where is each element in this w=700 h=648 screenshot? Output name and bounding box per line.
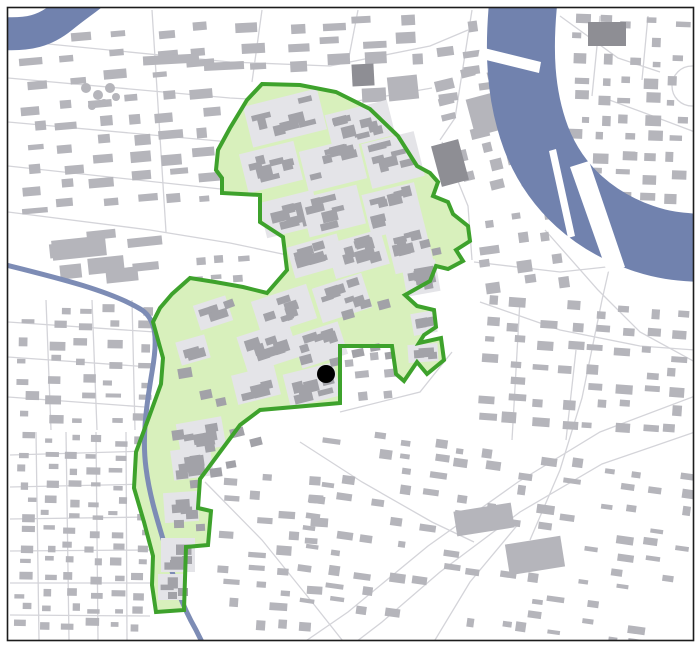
building [91, 435, 101, 442]
large-building [362, 87, 387, 102]
building [630, 57, 641, 65]
building [250, 491, 260, 500]
building [70, 500, 79, 508]
building [57, 144, 72, 154]
building [623, 328, 635, 337]
building [214, 255, 224, 263]
building [23, 603, 32, 609]
building [115, 441, 127, 447]
building [196, 127, 207, 138]
building [111, 622, 119, 627]
building [47, 481, 59, 488]
building [211, 274, 222, 279]
building [83, 374, 96, 383]
building [435, 439, 448, 449]
building [626, 504, 637, 512]
building [307, 586, 323, 595]
building [86, 467, 100, 475]
building [670, 135, 683, 141]
building [568, 341, 585, 350]
building [17, 464, 25, 471]
building [516, 259, 533, 273]
building [176, 469, 189, 479]
building [76, 359, 85, 366]
building [323, 23, 346, 32]
storage-tank [105, 83, 115, 93]
building [532, 364, 548, 371]
building [257, 517, 273, 524]
large-building [387, 74, 419, 101]
building [667, 100, 674, 106]
building [22, 526, 35, 532]
building [174, 520, 184, 528]
building [645, 385, 660, 392]
building [45, 556, 54, 561]
building [163, 90, 176, 100]
building [400, 485, 412, 496]
building [250, 63, 266, 70]
building [299, 622, 311, 632]
building [73, 338, 87, 346]
building [642, 175, 656, 185]
building [217, 565, 228, 573]
building [111, 590, 125, 596]
building [466, 618, 474, 628]
building [647, 17, 657, 23]
building [678, 117, 688, 124]
building [69, 513, 80, 518]
building [644, 78, 659, 89]
building [602, 116, 611, 126]
building [133, 593, 144, 600]
building [540, 232, 550, 242]
building [106, 393, 121, 397]
building [41, 510, 49, 515]
building [21, 546, 33, 554]
building [518, 232, 529, 244]
building [124, 94, 137, 102]
building [50, 342, 66, 351]
building [67, 588, 77, 596]
building [19, 453, 29, 458]
building [552, 253, 563, 264]
building [73, 603, 80, 611]
building [48, 546, 56, 553]
building [22, 514, 35, 522]
building [63, 572, 72, 580]
building [35, 120, 47, 130]
storage-tank [93, 90, 103, 100]
building [113, 486, 122, 491]
building [28, 498, 37, 502]
building [572, 457, 584, 468]
building [604, 54, 613, 65]
building [132, 170, 152, 181]
building [175, 499, 190, 512]
building [241, 43, 265, 54]
building [196, 524, 205, 531]
building [17, 359, 25, 364]
building [209, 467, 222, 478]
building [281, 590, 291, 596]
building [79, 323, 92, 330]
building [328, 565, 340, 576]
building [45, 495, 57, 503]
building [233, 275, 243, 283]
building [355, 370, 369, 378]
building [672, 170, 687, 180]
building [625, 133, 635, 140]
building [401, 14, 415, 25]
building [614, 347, 631, 356]
building [54, 321, 66, 328]
building [91, 593, 103, 599]
building [596, 325, 610, 333]
building [402, 468, 411, 475]
building [482, 353, 499, 363]
building [558, 365, 572, 374]
building [527, 572, 538, 583]
building [390, 517, 403, 527]
map-figure [0, 0, 700, 648]
building [479, 82, 491, 91]
building [616, 169, 630, 175]
building [256, 581, 266, 588]
building [131, 573, 143, 580]
building [540, 320, 558, 329]
building [109, 49, 124, 57]
building [238, 255, 250, 261]
building [132, 606, 143, 613]
building [644, 153, 656, 161]
building [27, 80, 47, 90]
building [582, 117, 589, 123]
building [61, 624, 74, 630]
building [672, 330, 687, 340]
building [88, 502, 99, 507]
large-building [588, 22, 626, 46]
building [161, 585, 174, 591]
building [487, 317, 500, 327]
building [363, 41, 387, 49]
building [93, 515, 104, 520]
building [678, 310, 689, 317]
building [71, 32, 92, 42]
building [115, 576, 125, 582]
building [342, 475, 356, 485]
building [49, 464, 59, 469]
building [103, 68, 127, 79]
building [43, 589, 51, 597]
building [112, 532, 124, 538]
building [22, 432, 35, 438]
building [170, 560, 179, 567]
building [14, 620, 26, 627]
building [575, 78, 590, 85]
building [515, 621, 526, 632]
building [134, 134, 151, 146]
building [310, 517, 328, 527]
building [653, 62, 661, 68]
building [457, 495, 468, 504]
building [108, 511, 117, 515]
building [412, 53, 423, 64]
building [45, 438, 52, 443]
building [370, 352, 379, 360]
building [468, 20, 479, 32]
building [262, 474, 272, 481]
building [45, 395, 61, 404]
building [63, 528, 75, 534]
building [109, 468, 123, 473]
building [645, 115, 661, 126]
building [192, 21, 206, 30]
building [42, 605, 51, 611]
building [100, 115, 113, 126]
building [278, 511, 295, 519]
location-marker-dot [317, 365, 335, 383]
building [511, 212, 520, 219]
building [116, 456, 127, 461]
building [161, 154, 182, 167]
building [113, 543, 124, 549]
building [489, 295, 498, 305]
building [356, 606, 367, 616]
building [70, 469, 77, 475]
building [61, 178, 73, 187]
building [414, 350, 425, 359]
building [288, 43, 310, 52]
building [19, 572, 32, 580]
building [171, 429, 184, 441]
building [524, 274, 536, 284]
building [70, 77, 86, 85]
building [235, 22, 257, 33]
building [119, 497, 127, 504]
building [87, 609, 99, 614]
building [224, 495, 239, 502]
building [618, 305, 629, 312]
building [456, 448, 464, 454]
building [481, 448, 492, 458]
building [48, 376, 61, 384]
building [506, 323, 518, 332]
building [90, 531, 100, 538]
building [640, 193, 655, 201]
building [620, 399, 631, 406]
storage-tank [112, 93, 120, 101]
building [91, 482, 101, 486]
building [365, 51, 387, 64]
building [642, 346, 651, 353]
building [43, 525, 54, 530]
building [90, 577, 101, 585]
building [596, 132, 604, 140]
building [199, 195, 209, 202]
building [558, 276, 570, 288]
building [663, 424, 675, 433]
building [671, 356, 687, 363]
building [256, 620, 266, 631]
building [575, 90, 589, 99]
building [676, 21, 691, 27]
building [598, 96, 610, 106]
building [40, 622, 50, 630]
building [362, 586, 373, 596]
building [224, 478, 238, 486]
building [159, 30, 176, 39]
building [682, 506, 691, 516]
building [617, 98, 630, 104]
building [219, 531, 234, 539]
building [111, 30, 126, 37]
building [485, 282, 500, 295]
storage-tank [88, 102, 96, 110]
building [601, 15, 613, 22]
building [309, 494, 324, 503]
building [80, 309, 92, 314]
building [415, 319, 426, 329]
building [95, 558, 102, 565]
building [21, 482, 28, 490]
building [93, 154, 113, 164]
building [648, 328, 662, 337]
building [289, 531, 300, 540]
building [62, 308, 71, 315]
building [501, 411, 516, 423]
building [396, 32, 416, 44]
building [537, 341, 554, 351]
building [65, 164, 85, 174]
building [129, 114, 141, 125]
building [485, 336, 495, 342]
building [563, 421, 579, 430]
building [646, 92, 661, 103]
building [586, 344, 602, 351]
building [168, 592, 177, 599]
storage-tank [100, 99, 108, 107]
building [509, 297, 526, 308]
building [46, 452, 59, 457]
building [229, 598, 238, 607]
building [103, 380, 112, 385]
building [588, 383, 602, 391]
building [319, 36, 338, 44]
building [615, 384, 633, 394]
building [98, 134, 111, 144]
building [19, 337, 28, 346]
building [665, 152, 673, 162]
building [107, 340, 122, 349]
building [189, 88, 213, 100]
building [138, 546, 148, 553]
building [351, 16, 370, 24]
building [141, 344, 150, 352]
building [82, 392, 95, 398]
building [508, 393, 526, 401]
building [110, 320, 119, 327]
building [186, 510, 198, 520]
building [196, 257, 206, 265]
building [86, 618, 100, 626]
building [85, 454, 95, 459]
building [567, 300, 581, 310]
building [643, 424, 659, 432]
building [597, 399, 606, 407]
building [515, 335, 526, 343]
building [249, 565, 265, 571]
building [669, 387, 685, 398]
building [479, 413, 497, 421]
building [29, 164, 41, 174]
building [647, 373, 659, 381]
building [485, 220, 494, 228]
building [413, 269, 424, 279]
large-building [351, 63, 374, 86]
building [139, 559, 147, 564]
building [109, 362, 122, 369]
building [621, 76, 630, 83]
building [59, 55, 74, 63]
building [22, 186, 41, 196]
building [597, 311, 606, 319]
building [532, 417, 550, 427]
building [615, 423, 630, 433]
building [203, 106, 221, 116]
building [563, 400, 576, 411]
building [110, 557, 122, 565]
building [20, 411, 28, 417]
building [16, 379, 28, 385]
storage-tank [81, 83, 91, 93]
building [573, 323, 584, 333]
building [65, 452, 77, 459]
building [291, 24, 306, 34]
building [517, 485, 526, 496]
building [603, 78, 611, 86]
building [305, 538, 318, 545]
building [62, 542, 72, 548]
building [26, 391, 40, 400]
city-map [0, 0, 700, 648]
building [593, 153, 609, 164]
building [478, 396, 494, 405]
building [290, 61, 307, 73]
building [20, 106, 39, 116]
building [379, 449, 393, 460]
building [511, 377, 526, 385]
building [278, 619, 287, 629]
building [204, 443, 215, 453]
building [327, 53, 350, 65]
building [618, 114, 628, 123]
building [66, 556, 74, 562]
building [345, 359, 354, 367]
building [586, 364, 598, 375]
building [664, 194, 677, 205]
building [49, 415, 63, 424]
building [276, 545, 292, 556]
building [115, 609, 123, 613]
building [45, 575, 57, 581]
building [84, 546, 93, 552]
building [269, 602, 287, 611]
building [479, 259, 490, 268]
building [573, 53, 586, 64]
building [309, 476, 321, 485]
building [56, 198, 73, 208]
building [672, 405, 682, 416]
